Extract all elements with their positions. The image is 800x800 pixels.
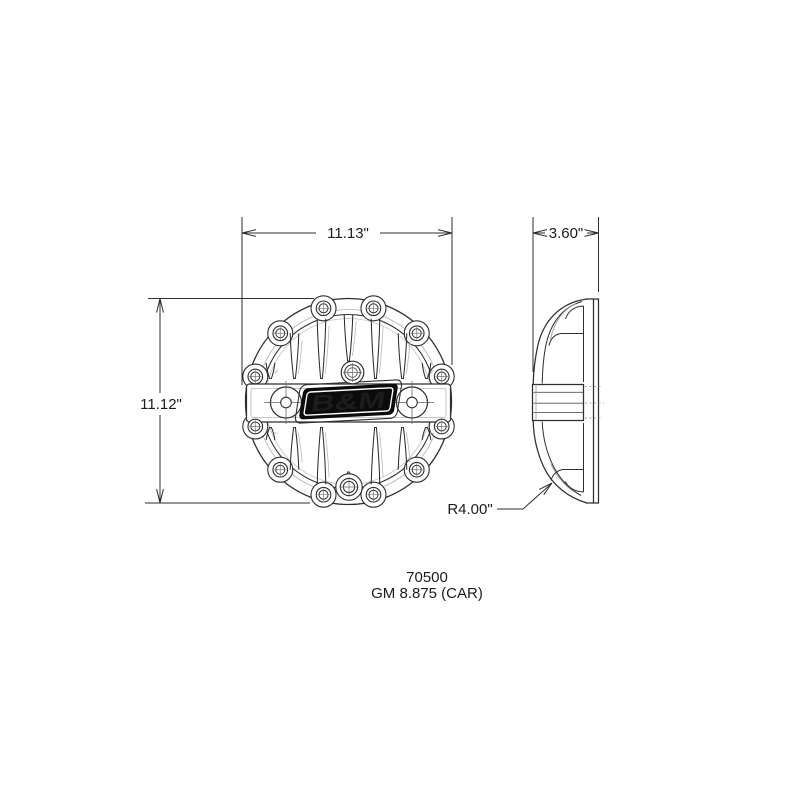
side-inner-panel-top <box>549 306 584 382</box>
bottom-drain-plug <box>336 474 362 500</box>
width-dimension-label: 11.13" <box>327 225 369 242</box>
side-dome-top <box>533 299 587 384</box>
radius-leader <box>497 483 552 509</box>
logo-text: B&M <box>309 387 387 417</box>
part-number-label: 70500 <box>406 569 448 586</box>
drawing-page: B&M <box>0 0 800 800</box>
depth-dimension-label: 3.60" <box>549 225 584 242</box>
side-rib-curve-bottom <box>542 422 581 496</box>
technical-drawing: B&M <box>0 0 800 800</box>
height-dimension-label: 11.12" <box>140 396 182 413</box>
top-fill-plug <box>341 361 364 384</box>
application-label: GM 8.875 (CAR) <box>371 585 483 602</box>
side-dome-bottom <box>533 421 587 503</box>
side-center-bar <box>533 385 584 421</box>
radius-label: R4.00" <box>447 501 492 518</box>
side-view <box>533 299 605 504</box>
side-hidden-lines <box>585 387 604 419</box>
right-boss-hole <box>407 397 418 408</box>
side-flange <box>586 299 599 504</box>
front-view: B&M <box>243 296 454 507</box>
left-boss-hole <box>281 397 292 408</box>
side-inner-panel-bottom <box>551 423 584 492</box>
